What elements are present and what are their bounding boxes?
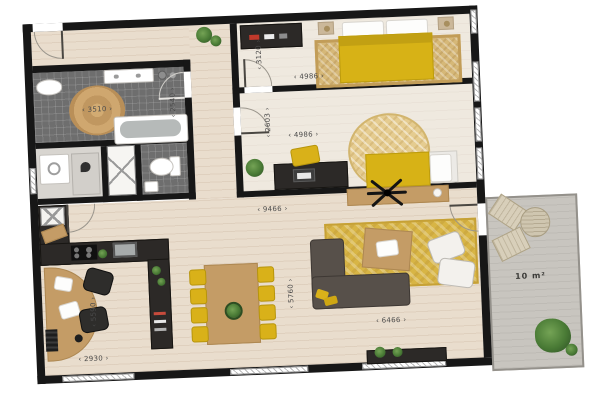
bookshelf-cabinet: [147, 259, 173, 350]
bed2-pillow: [429, 154, 452, 183]
dim-bathroom-height: 2540: [168, 82, 178, 122]
faucet-icon: [114, 74, 119, 78]
kitchen-sink: [113, 242, 138, 258]
desk-bedroom2: [274, 161, 349, 190]
wc-sink: [144, 181, 158, 193]
nightstand: [438, 16, 455, 30]
wardrobe: [240, 23, 303, 50]
ceiling-fan-icon: [367, 183, 408, 205]
book-spines: [154, 328, 166, 331]
duvet-fold: [339, 33, 431, 46]
dim-office-height: 5590: [89, 292, 99, 332]
vanity-double-sink: [103, 68, 154, 84]
washing-machine: [39, 154, 70, 185]
desk-papers: [53, 276, 73, 293]
window-right-4: [476, 147, 483, 179]
coffee-table-tray: [375, 239, 399, 258]
shelf-plant: [157, 278, 165, 286]
shower-cabin: [107, 145, 137, 196]
dim-bedroom1-height: 3120: [254, 34, 264, 74]
coffee-table: [362, 228, 413, 272]
window-left-1: [30, 168, 37, 194]
lamp-icon: [324, 26, 330, 32]
double-bed: [338, 32, 434, 83]
terrace-door-gap: [477, 203, 486, 235]
shelf-plant: [152, 266, 161, 275]
dining-chair: [190, 288, 208, 305]
faucet-icon: [136, 74, 141, 78]
bedroom1-door-gap: [244, 86, 272, 93]
armchair: [437, 257, 476, 289]
apartment-floorplan: 10 m² 3510 2540 4986 3120 4986 2603 9466…: [17, 0, 583, 400]
dim-bedroom2-height: 2603: [263, 102, 273, 142]
laptop-icon: [293, 168, 316, 182]
book-spines: [154, 320, 166, 323]
dining-chair: [189, 269, 207, 286]
corridor-floor: [189, 24, 237, 200]
dining-chair: [259, 323, 277, 340]
shelf-item: [279, 33, 287, 38]
lamp-icon: [444, 21, 450, 27]
dining-chair: [191, 326, 209, 343]
dining-chair: [257, 266, 275, 283]
shelf-item: [264, 34, 274, 39]
window-right-1: [470, 9, 477, 33]
dining-chair: [258, 304, 276, 321]
book-spines: [154, 312, 166, 315]
washer-drum-icon: [47, 162, 61, 176]
dining-chair: [258, 285, 276, 302]
nightstand: [318, 21, 335, 35]
floorplan-canvas: 10 m² 3510 2540 4986 3120 4986 2603 9466…: [0, 0, 600, 400]
bathroom-door-gap: [184, 71, 192, 97]
laundry-counter: [71, 152, 101, 195]
office-mat: [45, 329, 58, 351]
dim-dining-height: 5760: [286, 273, 296, 313]
tap-icon: [80, 162, 90, 172]
dining-chair: [191, 307, 209, 324]
stove: [71, 245, 98, 261]
